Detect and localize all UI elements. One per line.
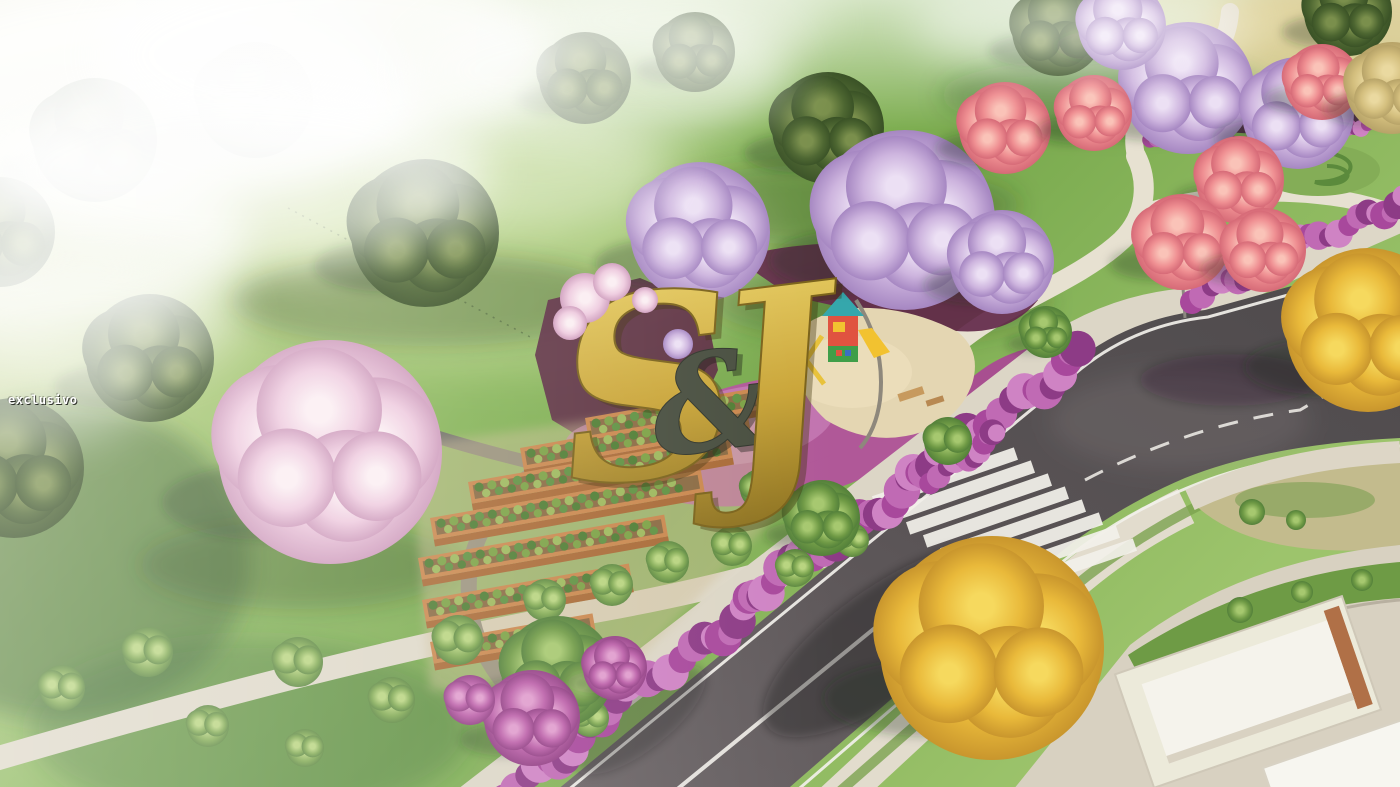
atmospheric-haze <box>0 0 1400 787</box>
scene-svg: S & J S & J <box>0 0 1400 787</box>
park-aerial-rendering: S & J S & J exclusivo <box>0 0 1400 787</box>
watermark-label: exclusivo <box>8 394 78 406</box>
